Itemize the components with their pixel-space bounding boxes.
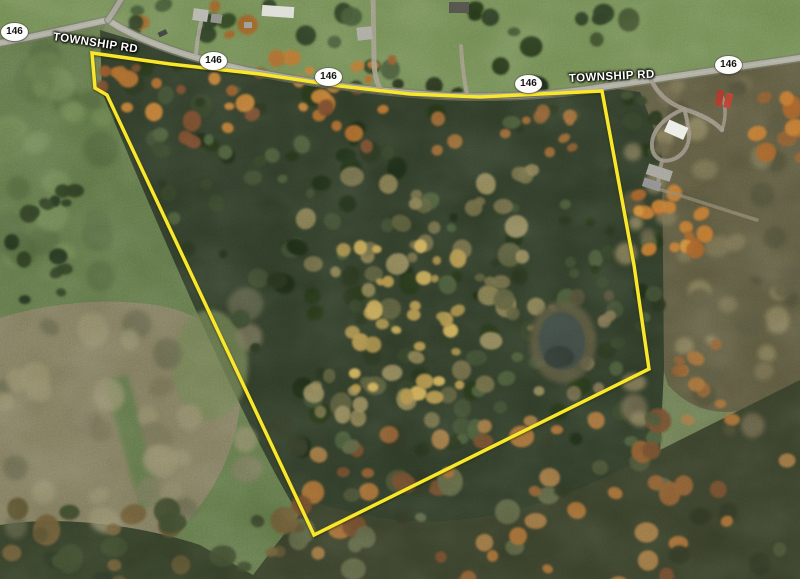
aerial-imagery: [0, 0, 800, 579]
route-shield-146: 146: [715, 56, 742, 74]
satellite-map-canvas[interactable]: TOWNSHIP RD TOWNSHIP RD 146 146 146 146 …: [0, 0, 800, 579]
route-shield-146: 146: [1, 23, 28, 41]
route-shield-146: 146: [515, 75, 542, 93]
route-shield-146: 146: [315, 68, 342, 86]
route-shield-146: 146: [200, 52, 227, 70]
